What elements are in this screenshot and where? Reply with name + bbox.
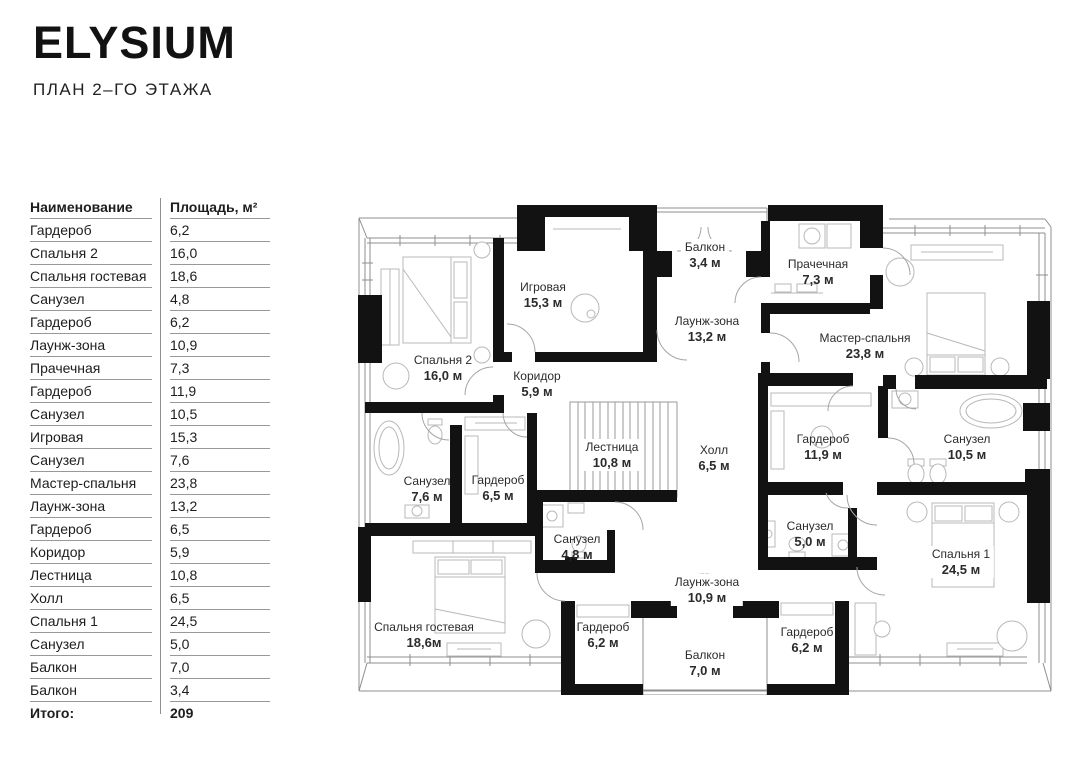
plan-room-area: 15,3 м [520,295,566,310]
plan-room-name: Мастер-спальня [819,331,910,345]
plan-room-area: 5,9 м [513,384,560,399]
table-row: Прачечная7,3 [30,357,280,380]
room-name: Гардероб [30,380,152,403]
plan-room-name: Санузел [554,532,601,546]
plan-room-label: Спальня 216,0 м [414,353,472,383]
bed-icon [855,502,1027,656]
room-area: 23,8 [170,472,270,495]
plan-room-name: Лестница [586,440,639,454]
room-area: 15,3 [170,426,270,449]
room-name: Холл [30,587,152,610]
logo: ELYSIUM [33,18,236,68]
plan-room-label: Коридор5,9 м [513,369,560,399]
room-name: Санузел [30,449,152,472]
total-label: Итого: [30,702,152,724]
plan-room-area: 10,8 м [586,455,639,470]
room-name: Игровая [30,426,152,449]
plan-room-area: 18,6м [374,635,474,650]
room-name: Санузел [30,403,152,426]
table-row: Мастер-спальня23,8 [30,472,280,495]
plan-room-name: Балкон [685,648,725,662]
room-name: Коридор [30,541,152,564]
plan-room-name: Гардероб [797,432,850,446]
plan-room-name: Гардероб [472,473,525,487]
room-name: Прачечная [30,357,152,380]
table-row: Коридор5,9 [30,541,280,564]
room-area: 24,5 [170,610,270,633]
plan-room-area: 6,2 м [577,635,630,650]
room-area: 10,9 [170,334,270,357]
room-area: 18,6 [170,265,270,288]
plan-room-name: Коридор [513,369,560,383]
room-name: Гардероб [30,518,152,541]
room-area: 10,8 [170,564,270,587]
table-row: Санузел5,0 [30,633,280,656]
room-name: Спальня 2 [30,242,152,265]
plan-room-area: 10,9 м [675,590,739,605]
plan-room-name: Игровая [520,280,566,294]
table-row: Гардероб6,2 [30,311,280,334]
room-area: 3,4 [170,679,270,702]
plan-room-label: Санузел7,6 м [404,474,451,504]
plan-room-area: 3,4 м [685,255,725,270]
table-row: Холл6,5 [30,587,280,610]
room-area: 11,9 [170,380,270,403]
plan-room-label: Балкон3,4 м [681,239,729,271]
plan-room-name: Балкон [685,240,725,254]
table-header-row: Наименование Площадь, м² [30,196,280,219]
plan-room-area: 13,2 м [675,329,739,344]
room-name: Мастер-спальня [30,472,152,495]
table-row: Игровая15,3 [30,426,280,449]
plan-room-label: Гардероб6,5 м [472,473,525,503]
plan-room-label: Мастер-спальня23,8 м [819,331,910,361]
plan-room-name: Гардероб [577,620,630,634]
plan-room-label: Спальня гостевая18,6м [374,620,474,650]
table-row: Гардероб11,9 [30,380,280,403]
plan-room-area: 24,5 м [932,562,990,577]
bay-window-seat [545,217,629,251]
plan-room-label: Лаунж-зона13,2 м [675,314,739,344]
plan-room-area: 5,0 м [787,534,834,549]
room-name: Лаунж-зона [30,495,152,518]
plan-room-name: Санузел [944,432,991,446]
floor-plan: Спальня 216,0 м Игровая15,3 м Балкон3,4 … [355,205,1055,695]
table-column-divider [160,198,161,714]
page-title: ПЛАН 2–ГО ЭТАЖА [33,80,236,100]
brand-header: ELYSIUM ПЛАН 2–ГО ЭТАЖА [33,18,236,100]
column-header-area: Площадь, м² [170,196,270,219]
plan-room-area: 4,8 м [554,547,601,562]
plan-room-name: Спальня 2 [414,353,472,367]
plan-room-label: Лаунж-зона10,9 м [671,574,743,606]
room-area: 4,8 [170,288,270,311]
table-row: Спальня гостевая18,6 [30,265,280,288]
room-name: Балкон [30,656,152,679]
plan-room-label: Гардероб11,9 м [797,432,850,462]
room-area: 10,5 [170,403,270,426]
room-area: 7,0 [170,656,270,679]
plan-room-label: Игровая15,3 м [520,280,566,310]
plan-room-label: Санузел5,0 м [787,519,834,549]
table-row: Гардероб6,2 [30,219,280,242]
plan-room-label: Спальня 124,5 м [928,546,994,578]
table-total-row: Итого: 209 [30,702,280,724]
room-name: Гардероб [30,219,152,242]
plan-room-name: Спальня 1 [932,547,990,561]
room-name: Санузел [30,288,152,311]
room-name: Спальня 1 [30,610,152,633]
area-table: Наименование Площадь, м² Гардероб6,2 Спа… [30,196,280,724]
plan-room-name: Санузел [404,474,451,488]
table-row: Гардероб6,5 [30,518,280,541]
plan-room-area: 11,9 м [797,447,850,462]
plan-room-name: Лаунж-зона [675,314,739,328]
room-name: Лестница [30,564,152,587]
table-row: Лаунж-зона10,9 [30,334,280,357]
plan-room-name: Гардероб [781,625,834,639]
room-name: Санузел [30,633,152,656]
table-row: Спальня 124,5 [30,610,280,633]
table-row: Санузел7,6 [30,449,280,472]
plan-room-label: Санузел10,5 м [944,432,991,462]
play-table-icon [571,294,599,322]
room-area: 7,3 [170,357,270,380]
plan-room-name: Спальня гостевая [374,620,474,634]
plan-room-name: Лаунж-зона [675,575,739,589]
room-area: 5,0 [170,633,270,656]
plan-room-area: 7,6 м [404,489,451,504]
room-area: 5,9 [170,541,270,564]
plan-room-label: Лестница10,8 м [582,439,643,471]
room-area: 6,5 [170,587,270,610]
table-row: Балкон3,4 [30,679,280,702]
room-area: 16,0 [170,242,270,265]
plan-room-label: Прачечная7,3 м [788,257,848,287]
room-name: Гардероб [30,311,152,334]
plan-room-label: Гардероб6,2 м [577,620,630,650]
column-header-name: Наименование [30,196,152,219]
room-area: 6,2 [170,219,270,242]
plan-room-area: 23,8 м [819,346,910,361]
plan-room-area: 6,2 м [781,640,834,655]
plan-room-label: Холл6,5 м [698,443,729,473]
room-name: Спальня гостевая [30,265,152,288]
plan-room-name: Прачечная [788,257,848,271]
room-name: Лаунж-зона [30,334,152,357]
plan-room-area: 6,5 м [472,488,525,503]
plan-room-area: 7,3 м [788,272,848,287]
plan-room-name: Холл [698,443,729,457]
plan-room-area: 7,0 м [685,663,725,678]
plan-room-label: Гардероб6,2 м [781,625,834,655]
table-row: Санузел4,8 [30,288,280,311]
room-area: 7,6 [170,449,270,472]
table-row: Санузел10,5 [30,403,280,426]
plan-room-label: Санузел4,8 м [554,532,601,562]
total-value: 209 [170,702,270,724]
table-row: Лаунж-зона13,2 [30,495,280,518]
room-name: Балкон [30,679,152,702]
table-row: Балкон7,0 [30,656,280,679]
plan-room-area: 6,5 м [698,458,729,473]
plan-room-label: Балкон7,0 м [685,648,725,678]
plan-room-area: 16,0 м [414,368,472,383]
plan-room-area: 10,5 м [944,447,991,462]
room-area: 13,2 [170,495,270,518]
room-area: 6,5 [170,518,270,541]
table-row: Лестница10,8 [30,564,280,587]
room-area: 6,2 [170,311,270,334]
table-row: Спальня 216,0 [30,242,280,265]
plan-room-name: Санузел [787,519,834,533]
